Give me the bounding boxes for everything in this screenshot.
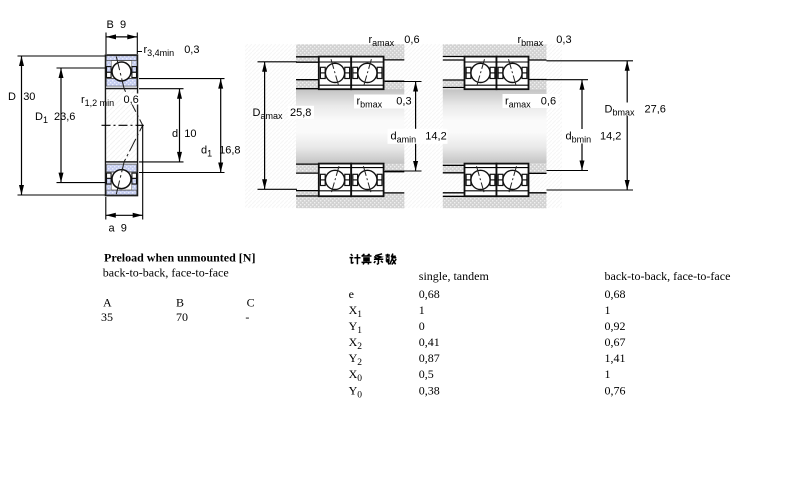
svg-text:Y0: Y0 xyxy=(349,383,363,400)
svg-text:D123,6: D123,6 xyxy=(35,111,75,125)
svg-text:0: 0 xyxy=(419,319,425,333)
svg-text:Preload when unmounted [N]: Preload when unmounted [N] xyxy=(104,251,255,265)
svg-text:25,8: 25,8 xyxy=(290,107,311,119)
svg-text:B 9: B 9 xyxy=(107,19,127,31)
svg-text:1: 1 xyxy=(605,303,611,317)
svg-text:A: A xyxy=(103,296,112,310)
svg-text:d 10: d 10 xyxy=(172,128,196,140)
svg-text:a 9: a 9 xyxy=(109,223,127,235)
svg-text:X2: X2 xyxy=(349,335,363,352)
svg-text:C: C xyxy=(247,296,255,310)
svg-text:14,2: 14,2 xyxy=(425,131,446,143)
svg-text:B: B xyxy=(176,296,184,310)
svg-text:0,5: 0,5 xyxy=(419,367,434,381)
svg-text:d116,8: d116,8 xyxy=(201,145,241,159)
svg-text:r3,4min0,3: r3,4min0,3 xyxy=(144,44,200,58)
svg-text:1: 1 xyxy=(605,367,611,381)
svg-text:0,76: 0,76 xyxy=(605,383,626,397)
svg-text:1,41: 1,41 xyxy=(605,351,626,365)
svg-text:0,92: 0,92 xyxy=(605,319,626,333)
svg-text:back-to-back, face-to-face: back-to-back, face-to-face xyxy=(605,269,731,283)
svg-text:e: e xyxy=(349,287,354,301)
svg-text:27,6: 27,6 xyxy=(645,104,666,116)
svg-text:X0: X0 xyxy=(349,367,363,384)
svg-text:0,38: 0,38 xyxy=(419,383,440,397)
svg-text:0,41: 0,41 xyxy=(419,335,440,349)
svg-text:D: D xyxy=(8,91,16,103)
svg-text:X1: X1 xyxy=(349,303,363,320)
svg-text:single, tandem: single, tandem xyxy=(419,269,490,283)
svg-text:70: 70 xyxy=(176,310,188,324)
svg-text:0,6: 0,6 xyxy=(124,94,139,106)
svg-text:0,68: 0,68 xyxy=(605,287,626,301)
svg-text:30: 30 xyxy=(23,91,35,103)
svg-text:1: 1 xyxy=(419,303,425,317)
svg-text:0,68: 0,68 xyxy=(419,287,440,301)
svg-text:35: 35 xyxy=(101,310,113,324)
svg-text:14,2: 14,2 xyxy=(600,131,621,143)
svg-text:0,87: 0,87 xyxy=(419,351,440,365)
svg-text:0,67: 0,67 xyxy=(605,335,626,349)
svg-text:ramax 0,6: ramax 0,6 xyxy=(369,34,420,48)
svg-text:Y1: Y1 xyxy=(349,319,363,336)
svg-text:Y2: Y2 xyxy=(349,351,363,368)
svg-text:-: - xyxy=(245,310,249,324)
svg-text:back-to-back, face-to-face: back-to-back, face-to-face xyxy=(103,266,229,280)
